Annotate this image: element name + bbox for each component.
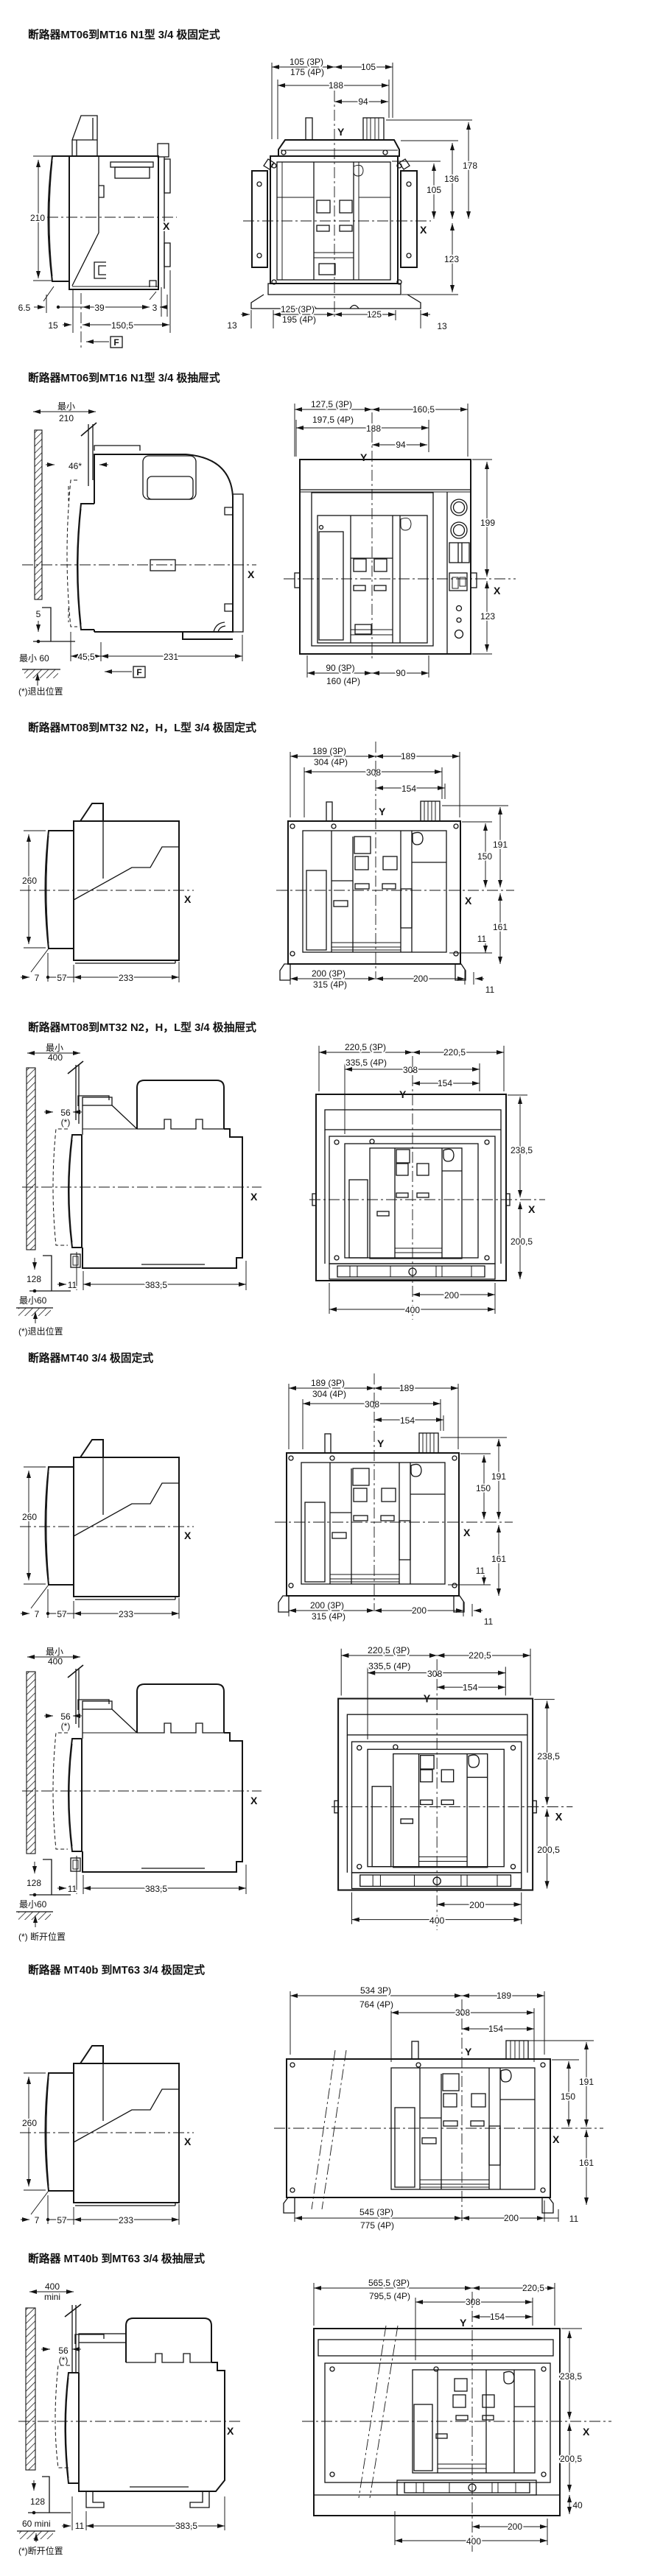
svg-text:断路器MT40 3/4 极固定式: 断路器MT40 3/4 极固定式 — [28, 1351, 153, 1365]
svg-text:188: 188 — [329, 80, 343, 91]
svg-text:94: 94 — [358, 96, 368, 107]
svg-text:161: 161 — [493, 922, 508, 932]
svg-text:188: 188 — [366, 423, 381, 434]
svg-text:400: 400 — [405, 1305, 420, 1315]
svg-text:断路器MT08到MT32 N2，H，L型 3/4 极固定式: 断路器MT08到MT32 N2，H，L型 3/4 极固定式 — [28, 721, 256, 734]
svg-text:127,5 (3P): 127,5 (3P) — [311, 399, 352, 409]
svg-text:(*)退出位置: (*)退出位置 — [18, 686, 63, 697]
svg-text:189: 189 — [401, 751, 415, 761]
svg-text:308: 308 — [455, 2007, 470, 2018]
svg-text:315 (4P): 315 (4P) — [313, 979, 347, 990]
svg-text:94: 94 — [396, 440, 406, 450]
svg-text:125 (3P): 125 (3P) — [281, 304, 315, 314]
svg-text:105: 105 — [361, 62, 376, 72]
svg-text:X: X — [528, 1203, 536, 1215]
svg-text:X: X — [184, 893, 192, 905]
svg-text:105: 105 — [427, 185, 441, 195]
svg-text:191: 191 — [493, 840, 508, 850]
svg-text:X: X — [227, 2425, 234, 2437]
svg-text:308: 308 — [466, 2297, 480, 2307]
svg-text:60 mini: 60 mini — [22, 2519, 51, 2529]
svg-text:X: X — [465, 895, 472, 907]
svg-text:X: X — [163, 220, 170, 232]
svg-text:220,5: 220,5 — [443, 1047, 466, 1058]
svg-text:383,5: 383,5 — [175, 2521, 197, 2531]
svg-text:Y: Y — [465, 2046, 472, 2058]
svg-text:X: X — [420, 224, 427, 236]
svg-text:56: 56 — [58, 2346, 69, 2356]
svg-text:3: 3 — [152, 303, 158, 313]
svg-text:200,5: 200,5 — [511, 1236, 533, 1247]
svg-text:最小: 最小 — [46, 1043, 63, 1053]
svg-text:178: 178 — [463, 161, 477, 171]
svg-text:40: 40 — [572, 2500, 583, 2510]
svg-text:Y: Y — [337, 126, 345, 138]
svg-text:154: 154 — [438, 1078, 452, 1088]
svg-text:197,5 (4P): 197,5 (4P) — [312, 415, 354, 425]
svg-text:200 (3P): 200 (3P) — [312, 968, 345, 979]
svg-text:308: 308 — [403, 1065, 418, 1075]
svg-text:200: 200 — [413, 974, 428, 984]
svg-text:220,5: 220,5 — [522, 2283, 544, 2293]
svg-text:F: F — [136, 667, 141, 678]
svg-text:(*)断开位置: (*)断开位置 — [18, 2545, 63, 2556]
svg-text:90 (3P): 90 (3P) — [326, 663, 354, 673]
svg-text:136: 136 — [444, 174, 459, 184]
svg-text:断路器MT08到MT32 N2，H，L型 3/4 极抽屉式: 断路器MT08到MT32 N2，H，L型 3/4 极抽屉式 — [28, 1021, 256, 1034]
svg-text:160,5: 160,5 — [413, 404, 435, 415]
svg-text:260: 260 — [22, 876, 37, 886]
svg-text:最小 60: 最小 60 — [19, 653, 49, 664]
svg-text:545 (3P): 545 (3P) — [359, 2207, 393, 2217]
svg-text:(*): (*) — [59, 2355, 69, 2365]
svg-text:154: 154 — [401, 784, 416, 794]
svg-text:X: X — [248, 569, 255, 580]
svg-text:X: X — [552, 2133, 560, 2145]
svg-text:200: 200 — [444, 1290, 459, 1301]
svg-text:764 (4P): 764 (4P) — [359, 1999, 393, 2010]
svg-text:Y: Y — [379, 806, 386, 817]
svg-text:191: 191 — [579, 2077, 594, 2087]
svg-text:565,5 (3P): 565,5 (3P) — [368, 2278, 410, 2288]
svg-text:775 (4P): 775 (4P) — [360, 2220, 394, 2231]
svg-text:150: 150 — [561, 2091, 575, 2102]
svg-text:150,5: 150,5 — [111, 320, 133, 331]
svg-text:57: 57 — [57, 973, 67, 983]
svg-text:13: 13 — [227, 320, 237, 331]
svg-text:最小: 最小 — [57, 401, 75, 412]
svg-text:795,5 (4P): 795,5 (4P) — [369, 2291, 410, 2301]
svg-text:123: 123 — [480, 611, 495, 622]
svg-text:200,5: 200,5 — [560, 2454, 582, 2464]
svg-text:233: 233 — [119, 973, 133, 983]
svg-text:128: 128 — [30, 2496, 45, 2507]
svg-text:161: 161 — [579, 2158, 594, 2168]
svg-text:383,5: 383,5 — [145, 1280, 167, 1290]
svg-text:56: 56 — [60, 1108, 71, 1118]
svg-text:15: 15 — [48, 320, 58, 331]
svg-text:238,5: 238,5 — [511, 1145, 533, 1155]
svg-text:13: 13 — [437, 321, 447, 331]
svg-text:断路器MT06到MT16 N1型 3/4 极抽屉式: 断路器MT06到MT16 N1型 3/4 极抽屉式 — [28, 371, 220, 384]
svg-text:6.5: 6.5 — [18, 303, 31, 313]
svg-text:断路器MT06到MT16 N1型 3/4 极固定式: 断路器MT06到MT16 N1型 3/4 极固定式 — [28, 28, 220, 41]
svg-text:400: 400 — [466, 2536, 481, 2547]
svg-text:154: 154 — [490, 2312, 505, 2322]
svg-text:断路器 MT40b 到MT63 3/4 极抽屉式: 断路器 MT40b 到MT63 3/4 极抽屉式 — [28, 2252, 205, 2265]
svg-text:150: 150 — [477, 851, 492, 862]
svg-text:11: 11 — [485, 985, 495, 995]
svg-text:160 (4P): 160 (4P) — [326, 676, 360, 686]
svg-text:mini: mini — [44, 2292, 60, 2302]
svg-text:189: 189 — [497, 1991, 511, 2001]
svg-text:11: 11 — [75, 2521, 85, 2531]
svg-text:400: 400 — [48, 1052, 63, 1063]
svg-text:195 (4P): 195 (4P) — [282, 314, 316, 325]
svg-text:210: 210 — [30, 213, 45, 223]
svg-text:335,5 (4P): 335,5 (4P) — [345, 1058, 387, 1068]
svg-text:123: 123 — [444, 254, 459, 264]
svg-text:189 (3P): 189 (3P) — [312, 746, 346, 756]
svg-text:200: 200 — [508, 2522, 522, 2532]
svg-text:534 3P): 534 3P) — [360, 1985, 391, 1996]
svg-text:(*)退出位置: (*)退出位置 — [18, 1326, 63, 1337]
svg-text:45,5: 45,5 — [77, 652, 95, 662]
svg-text:125: 125 — [367, 309, 382, 320]
svg-text:5: 5 — [36, 609, 41, 619]
svg-text:断路器 MT40b 到MT63 3/4 极固定式: 断路器 MT40b 到MT63 3/4 极固定式 — [28, 1963, 205, 1977]
svg-text:46*: 46* — [69, 461, 82, 471]
svg-text:X: X — [250, 1191, 258, 1203]
svg-text:308: 308 — [366, 767, 381, 778]
svg-text:最小60: 最小60 — [19, 1295, 47, 1306]
svg-text:11: 11 — [569, 2214, 579, 2224]
svg-text:11: 11 — [477, 934, 487, 944]
svg-text:105 (3P): 105 (3P) — [290, 57, 323, 67]
svg-text:154: 154 — [488, 2024, 503, 2034]
svg-text:X: X — [494, 585, 501, 597]
svg-text:199: 199 — [480, 518, 495, 528]
svg-text:(*) 断开位置: (*) 断开位置 — [18, 1931, 66, 1942]
svg-text:238,5: 238,5 — [560, 2371, 582, 2382]
svg-text:210: 210 — [59, 413, 74, 423]
svg-text:X: X — [583, 2426, 590, 2438]
svg-text:220,5 (3P): 220,5 (3P) — [345, 1042, 386, 1052]
svg-text:Y: Y — [360, 451, 368, 463]
svg-text:304 (4P): 304 (4P) — [314, 757, 348, 767]
svg-text:Y: Y — [460, 2317, 467, 2329]
svg-text:128: 128 — [27, 1274, 41, 1284]
svg-text:90: 90 — [396, 668, 406, 678]
svg-text:7: 7 — [35, 973, 40, 983]
svg-text:175 (4P): 175 (4P) — [290, 67, 324, 77]
svg-text:400: 400 — [45, 2281, 60, 2292]
svg-text:F: F — [113, 337, 119, 348]
svg-text:231: 231 — [164, 652, 178, 662]
svg-text:39: 39 — [94, 303, 105, 313]
svg-text:11: 11 — [68, 1280, 77, 1290]
svg-text:200: 200 — [504, 2213, 519, 2223]
svg-text:(*): (*) — [61, 1117, 71, 1127]
